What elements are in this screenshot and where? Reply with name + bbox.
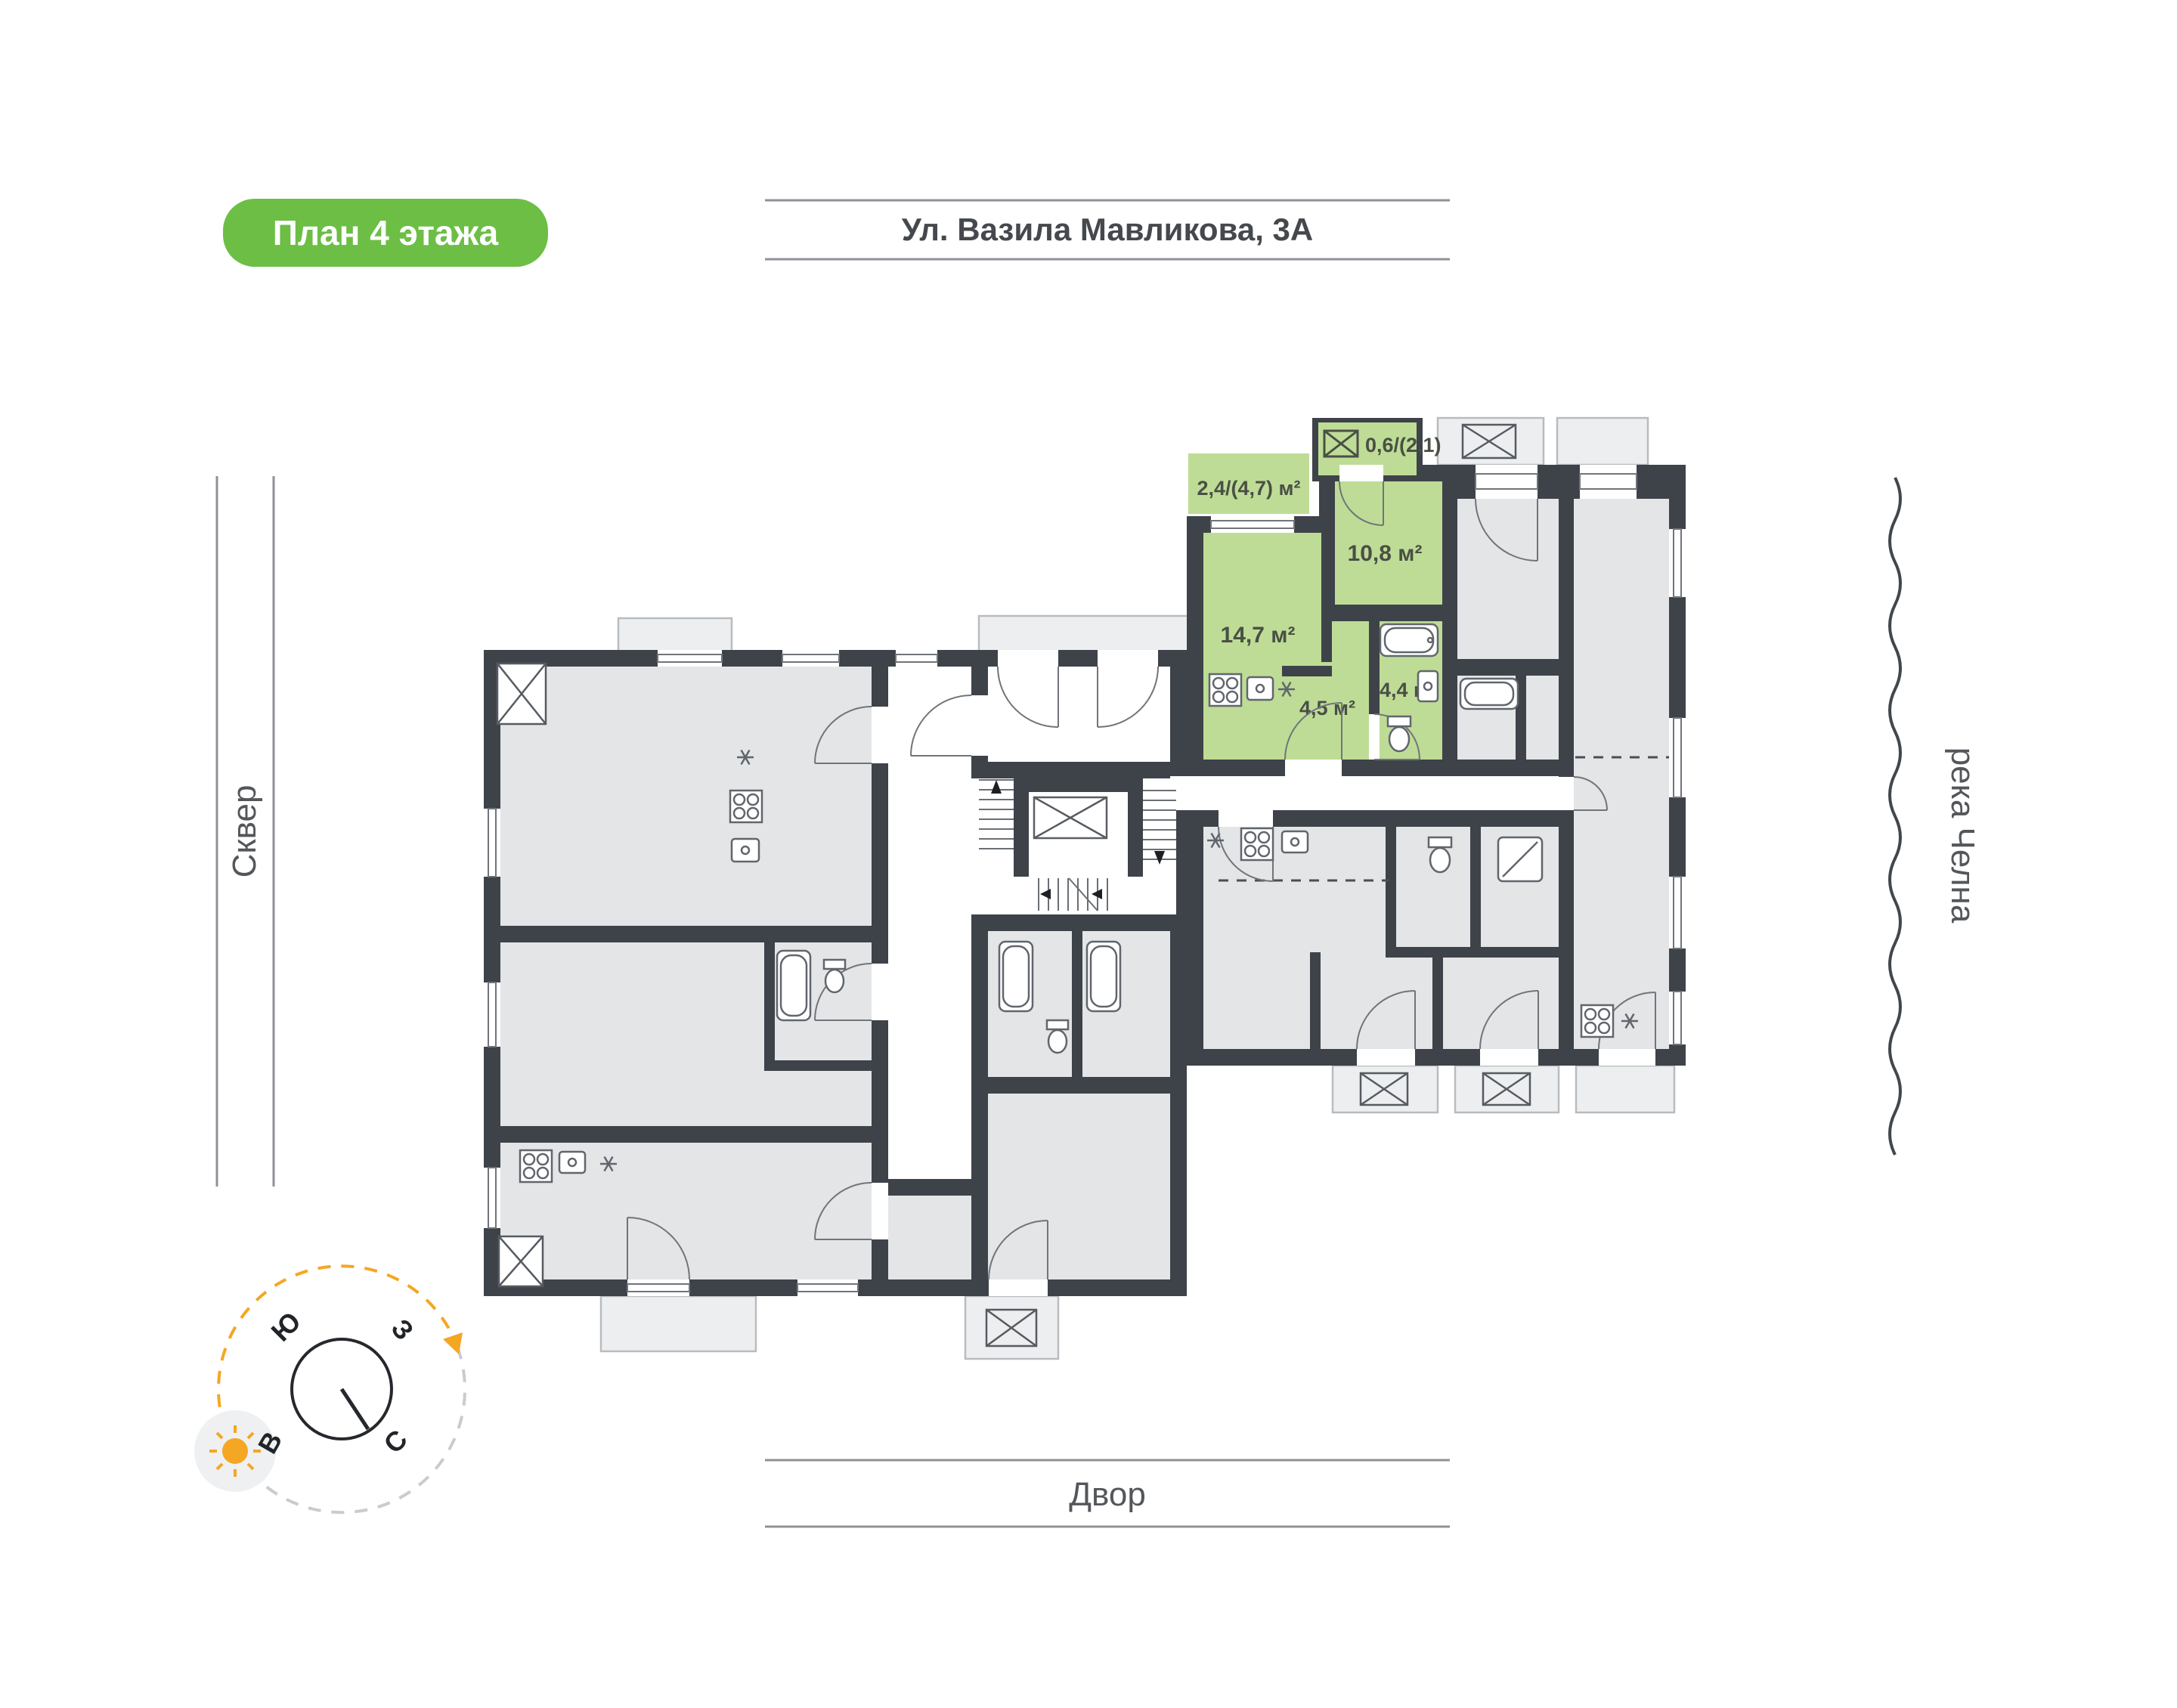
stove-icon [1209, 674, 1241, 706]
hall-area-label: 4,5 м² [1299, 697, 1355, 719]
bathtub-icon-mid1 [999, 942, 1033, 1011]
sink-icon [1418, 671, 1438, 701]
river-label: река Челна [1944, 747, 1981, 924]
sink-icon-sw [559, 1152, 585, 1173]
stove-icon-sw [520, 1150, 552, 1182]
sink-icon-west [732, 839, 759, 862]
toilet-icon [1388, 716, 1411, 751]
kitchen-sink-icon [1247, 677, 1273, 700]
stove-icon-east [1581, 1005, 1613, 1037]
badge-floor: План 4 этажа [223, 199, 548, 267]
toilet-icon-west [824, 960, 845, 992]
compass-south-label: Ю [265, 1306, 307, 1348]
bathtub-icon [1380, 624, 1438, 656]
street-label: Ул. Вазила Мавликова, 3А [902, 212, 1314, 247]
yard-guide: Двор [765, 1460, 1450, 1527]
park-label: Сквер [226, 785, 263, 878]
sink-icon-lower [1282, 831, 1308, 852]
badge-label: План 4 этажа [273, 213, 499, 252]
highlighted-apartment[interactable]: 2,4/(4,7) м² 0,6/(2,1) 10,8 м² 14,7 м² 4… [1188, 418, 1442, 760]
balcony-area-label: 2,4/(4,7) м² [1197, 477, 1300, 500]
park-guide: Сквер [217, 476, 274, 1187]
street-guide: Ул. Вазила Мавликова, 3А [765, 200, 1450, 259]
floor-plan-page: Ул. Вазила Мавликова, 3А План 4 этажа Ск… [0, 0, 2177, 1708]
compass: Ю З В С [194, 1266, 465, 1512]
bathtub-icon-west [777, 951, 810, 1020]
bathtub-icon-east [1460, 679, 1518, 709]
compass-west-label: З [386, 1313, 420, 1346]
bathtub-icon-mid2 [1087, 942, 1120, 1011]
loggia-area-label: 0,6/(2,1) [1365, 434, 1442, 456]
stove-icon-lower [1241, 828, 1273, 860]
shower-icon [1498, 837, 1542, 881]
floor-plan-svg: Ул. Вазила Мавликова, 3А План 4 этажа Ск… [0, 0, 2177, 1708]
yard-label: Двор [1069, 1476, 1146, 1513]
stove-icon-west [730, 791, 762, 822]
compass-north-label: С [377, 1423, 413, 1459]
bedroom-area-label: 10,8 м² [1348, 541, 1423, 566]
river-wavy-line [1890, 478, 1900, 1155]
river-guide: река Челна [1890, 478, 1981, 1155]
toilet-icon-mid [1047, 1020, 1068, 1053]
kitchen-area-label: 14,7 м² [1221, 623, 1296, 648]
toilet-icon-lower [1429, 837, 1451, 872]
